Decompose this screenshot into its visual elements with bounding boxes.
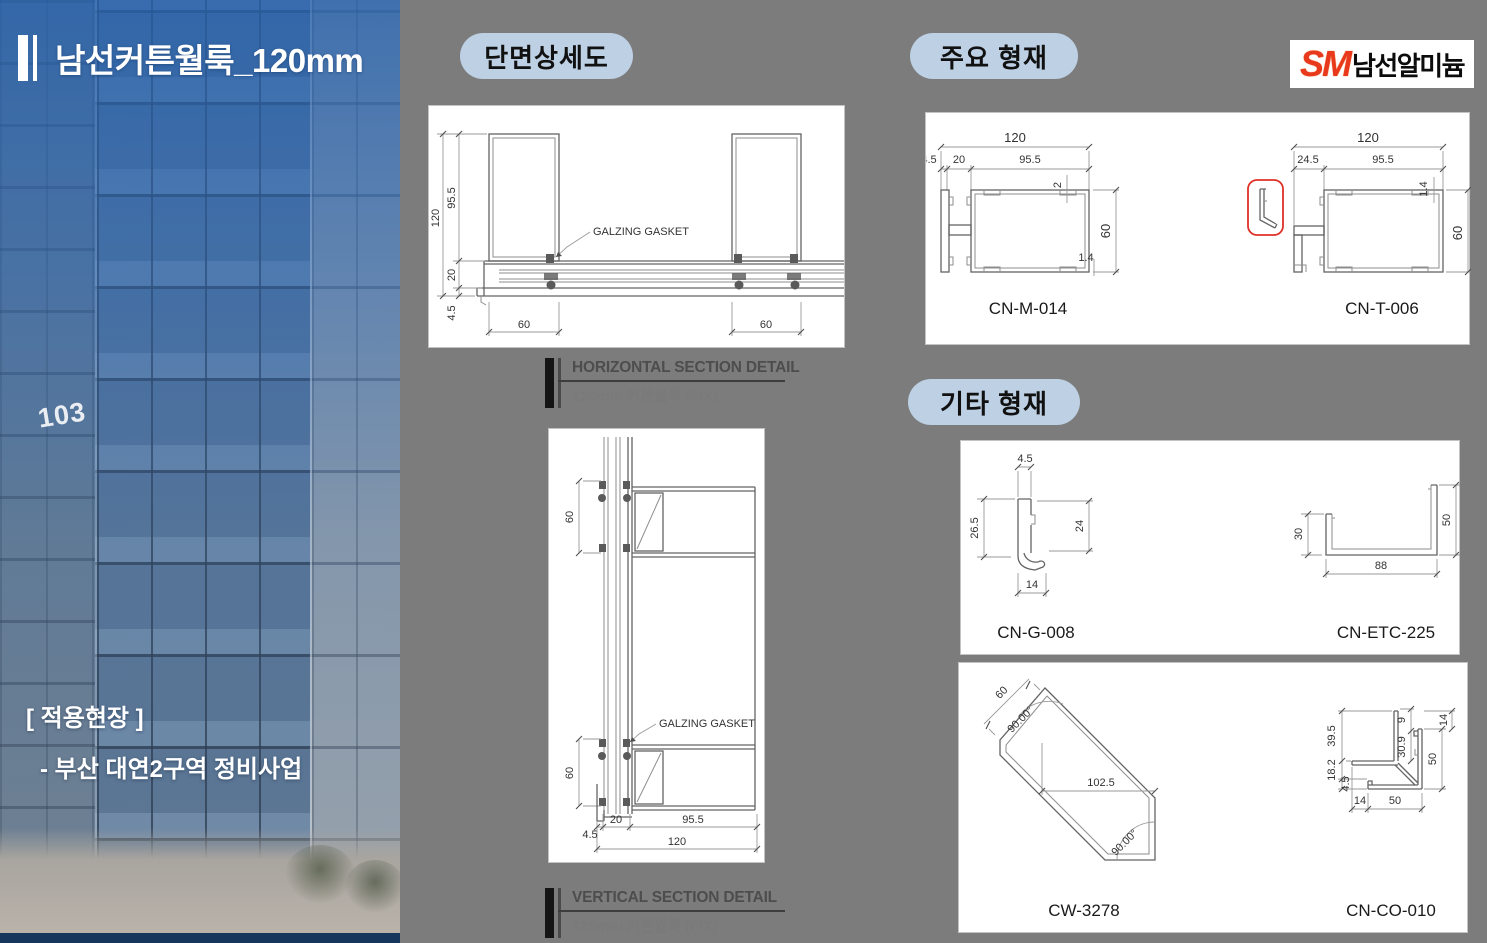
horizontal-section-box: GALZING GASKET 120 95.5 20 4.5 60 60	[428, 105, 845, 348]
horizontal-section-drawing: GALZING GASKET 120 95.5 20 4.5 60 60	[429, 106, 844, 347]
logo-company-name: 남선알미늄	[1352, 46, 1464, 83]
dim: 4.5	[1017, 453, 1032, 465]
gasket-label: GALZING GASKET	[593, 226, 689, 238]
dim: 20	[610, 814, 622, 826]
profile-cn-etc-225: 30 50 88 CN-ETC-225	[1221, 441, 1461, 654]
dim: 60	[1098, 224, 1113, 238]
dim: 4.5	[446, 305, 458, 320]
page-title: 남선커튼월룩_120mm	[55, 34, 363, 82]
dim: 14	[1354, 795, 1366, 807]
dim: 60	[564, 767, 576, 779]
dim: 95.5	[1372, 154, 1393, 166]
vertical-section-box: 60 60 GALZING GASKET 4.5 20	[548, 428, 765, 863]
profile-name: CN-ETC-225	[1337, 623, 1435, 642]
profile-cn-g-008: 4.5 26.5 24 14 CN-G-008	[961, 441, 1211, 654]
caption-title: HORIZONTAL SECTION DETAIL	[572, 359, 800, 377]
profile-cn-m-014: 120 4.5 20 95.5 60 2 1.4 CN-M-014	[926, 113, 1216, 344]
profile-name: CN-CO-010	[1346, 901, 1436, 920]
main-profiles-box: 120 4.5 20 95.5 60 2 1.4 CN-M-014	[925, 112, 1470, 345]
vertical-section-drawing: 60 60 GALZING GASKET 4.5 20	[549, 429, 764, 862]
dim: 26.5	[969, 517, 981, 538]
dim: 60	[1450, 226, 1465, 240]
dim: 30	[1293, 528, 1305, 540]
etc-profiles-box-1: 4.5 26.5 24 14 CN-G-008	[960, 440, 1460, 655]
site-block: [ 적용현장 ] - 부산 대연2구역 정비사업	[26, 698, 302, 784]
profile-name: CN-T-006	[1345, 299, 1419, 318]
caption-bar-thin	[558, 888, 561, 938]
caption-bar-thin	[558, 358, 561, 408]
dim: 120	[1004, 130, 1026, 145]
dim: 120	[1357, 130, 1379, 145]
gasket-label: GALZING GASKET	[659, 718, 755, 730]
caption-rule	[558, 910, 785, 912]
profile-name: CN-G-008	[997, 623, 1074, 642]
caption-bar-thick	[545, 358, 554, 408]
profile-cn-co-010: 39.5 18.2 4.5 9 30.9 14 50 14 50 CN-CO-0…	[1239, 663, 1469, 932]
profile-name: CN-M-014	[989, 299, 1067, 318]
slide-canvas: 103 남선커튼월룩_120mm [ 적용현장 ] - 부산 대연2구역 정비사…	[0, 0, 1487, 943]
profile-name: CW-3278	[1048, 901, 1120, 920]
badge-section-detail: 단면상세도	[460, 33, 633, 79]
dim: 60	[564, 511, 576, 523]
dim: 50	[1389, 795, 1401, 807]
dim: 95.5	[446, 187, 458, 208]
dim: 20	[446, 269, 458, 281]
site-label: [ 적용현장 ]	[26, 698, 302, 733]
profile-cn-t-006: 120 24.5 95.5 60 1.4 CN-T-006	[1216, 113, 1471, 344]
badge-etc-profiles: 기타 형재	[908, 379, 1080, 425]
dim: 4.5	[582, 829, 597, 841]
angle: 90.00°	[1005, 704, 1036, 735]
building-photo: 103 남선커튼월룩_120mm [ 적용현장 ] - 부산 대연2구역 정비사…	[0, 0, 400, 933]
dim: 50	[1427, 753, 1439, 765]
blue-gradient-overlay	[0, 0, 400, 933]
dim: 95.5	[682, 814, 703, 826]
title-bar-thin	[33, 35, 37, 81]
company-logo: SM 남선알미늄	[1290, 40, 1474, 88]
caption-rule	[558, 380, 785, 382]
dim: 2	[1052, 182, 1064, 188]
dim: 14	[1026, 579, 1038, 591]
title-block: 남선커튼월룩_120mm	[18, 34, 363, 82]
dim: 120	[430, 209, 442, 227]
dim: 39.5	[1326, 725, 1338, 746]
dim: 50	[1441, 514, 1453, 526]
dim: 30.9	[1396, 736, 1408, 757]
dim: 20	[953, 154, 965, 166]
title-bar-thick	[18, 35, 28, 81]
caption-bar-thick	[545, 888, 554, 938]
caption-title: VERTICAL SECTION DETAIL	[572, 889, 777, 907]
dim: 14	[1438, 714, 1450, 726]
dim: 60	[760, 319, 772, 331]
dim: 4.5	[1340, 776, 1352, 791]
dim: 60	[518, 319, 530, 331]
dim: 4.5	[926, 154, 937, 166]
dim: 102.5	[1087, 777, 1115, 789]
dim: 1.4	[1078, 252, 1093, 264]
dim: 60	[993, 684, 1010, 701]
dim: 9	[1396, 717, 1408, 723]
dim: 24.5	[1297, 154, 1318, 166]
dim: 1.4	[1418, 181, 1430, 196]
bottom-navy-strip	[0, 933, 400, 943]
site-name: - 부산 대연2구역 정비사업	[40, 749, 302, 784]
etc-profiles-box-2: 60 90.00° 102.5 90.00° CW-3278 39.5 1	[958, 662, 1468, 933]
profile-cw-3278: 60 90.00° 102.5 90.00° CW-3278	[959, 663, 1239, 932]
badge-main-profiles: 주요 형재	[910, 33, 1078, 79]
dim: 24	[1074, 520, 1086, 532]
dim: 88	[1375, 560, 1387, 572]
logo-sm-mark: SM	[1300, 43, 1350, 85]
caption-subtitle: 120mm 커튼월룩 (FIX)	[572, 385, 717, 406]
caption-subtitle: 120mm 커튼월룩 (FIX)	[572, 915, 717, 936]
dim: 18.2	[1326, 759, 1338, 780]
dim: 95.5	[1019, 154, 1040, 166]
dim: 120	[668, 836, 686, 848]
